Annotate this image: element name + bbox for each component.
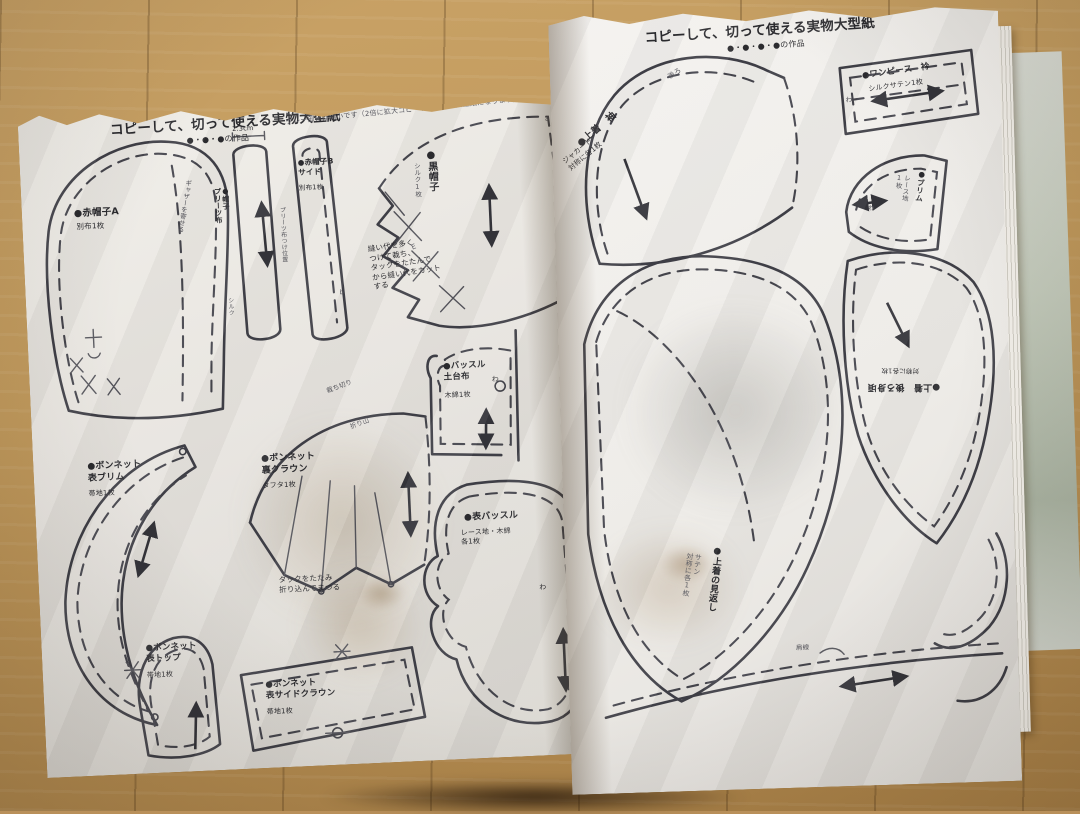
label-bonnet-front-brim-fabric: 帯地1枚 bbox=[88, 489, 115, 499]
label-bustle-base-fold: わ bbox=[492, 375, 500, 384]
label-bonnet-side-crown: ●ボンネット 表サイドクラウン bbox=[265, 677, 336, 702]
label-front-bustle-fold: わ bbox=[539, 583, 547, 592]
label-black-hat-note: 縫い代を多く つけて裁ち、 タックをたたんで から縫い代をカット する bbox=[367, 234, 443, 292]
mark-a: a bbox=[545, 115, 550, 123]
label-black-hat: ●黒帽子 bbox=[423, 150, 438, 192]
label-red-hat-a-fabric: 別布1枚 bbox=[76, 221, 104, 232]
piece-bustle-base bbox=[426, 330, 521, 464]
label-bustle-base-fabric: 木綿1枚 bbox=[444, 390, 471, 400]
label-black-hat-fabric: シルク1枚 bbox=[412, 162, 422, 197]
label-pleats-dim: 2.3cm bbox=[232, 124, 254, 133]
piece-jacket-back bbox=[841, 250, 999, 546]
label-bonnet-back-crown: ●ボンネット 裏クラウン bbox=[261, 452, 316, 477]
piece-dress-collar bbox=[839, 50, 978, 134]
piece-pleats-strip bbox=[232, 131, 280, 340]
label-front-bustle-fabric: レース地・木綿 各1枚 bbox=[461, 527, 512, 547]
label-bonnet-top: ●ボンネット 表トップ bbox=[145, 641, 197, 665]
label-lace-brim-fold: わ bbox=[868, 204, 875, 213]
piece-bonnet-front-brim bbox=[58, 445, 207, 729]
label-bonnet-front-brim: ●ボンネット 表ブリム bbox=[87, 459, 142, 484]
label-red-hat-b: ●赤帽子B サイド bbox=[298, 156, 335, 177]
piece-bonnet-back-crown bbox=[245, 412, 434, 597]
label-red-hat-a: ●赤帽子A bbox=[74, 206, 120, 220]
label-bonnet-side-crown-fabric: 帯地1枚 bbox=[266, 707, 293, 717]
piece-black-hat bbox=[373, 116, 566, 331]
piece-lace-brim bbox=[845, 155, 950, 254]
mark-b: b bbox=[340, 288, 345, 297]
piece-jacket-sleeve bbox=[582, 54, 801, 266]
label-lace-brim-fabric: レース地 1枚 bbox=[892, 174, 910, 202]
left-pattern-page: コピーして、切って使える実物大型紙 ●・●・●の作品 グレー部分は縮小です（2倍… bbox=[17, 86, 592, 778]
label-shoulder-line: 肩線 bbox=[796, 643, 810, 652]
label-pleats-strip: ●帽子 プリーツ布 bbox=[213, 187, 230, 224]
piece-red-hat-a bbox=[41, 139, 237, 423]
label-collar-fold: わ bbox=[846, 96, 853, 105]
right-pattern-page: コピーして、切って使える実物大型紙 ●・●・●・●の作品 ●上着 袖 ジャカード… bbox=[548, 0, 1022, 795]
label-bustle-base: ●バッスル 土台布 bbox=[443, 360, 486, 384]
label-pleats-fabric: シルク bbox=[226, 297, 235, 316]
label-jacket-back-fabric: 対称に各1枚 bbox=[881, 366, 919, 374]
label-jacket-back: ●上着 後ろ身頃 bbox=[868, 380, 941, 392]
label-red-hat-b-fabric: 別布1枚 bbox=[299, 183, 324, 192]
piece-jacket-front bbox=[580, 252, 852, 704]
label-bonnet-top-fabric: 帯地1枚 bbox=[147, 670, 174, 680]
label-bonnet-back-crown-fabric: タフタ1枚 bbox=[262, 480, 296, 490]
label-front-bustle: ●表バッスル bbox=[464, 510, 519, 524]
label-tuck-note: タックをたたみ 折り込んでまつる bbox=[278, 573, 340, 595]
